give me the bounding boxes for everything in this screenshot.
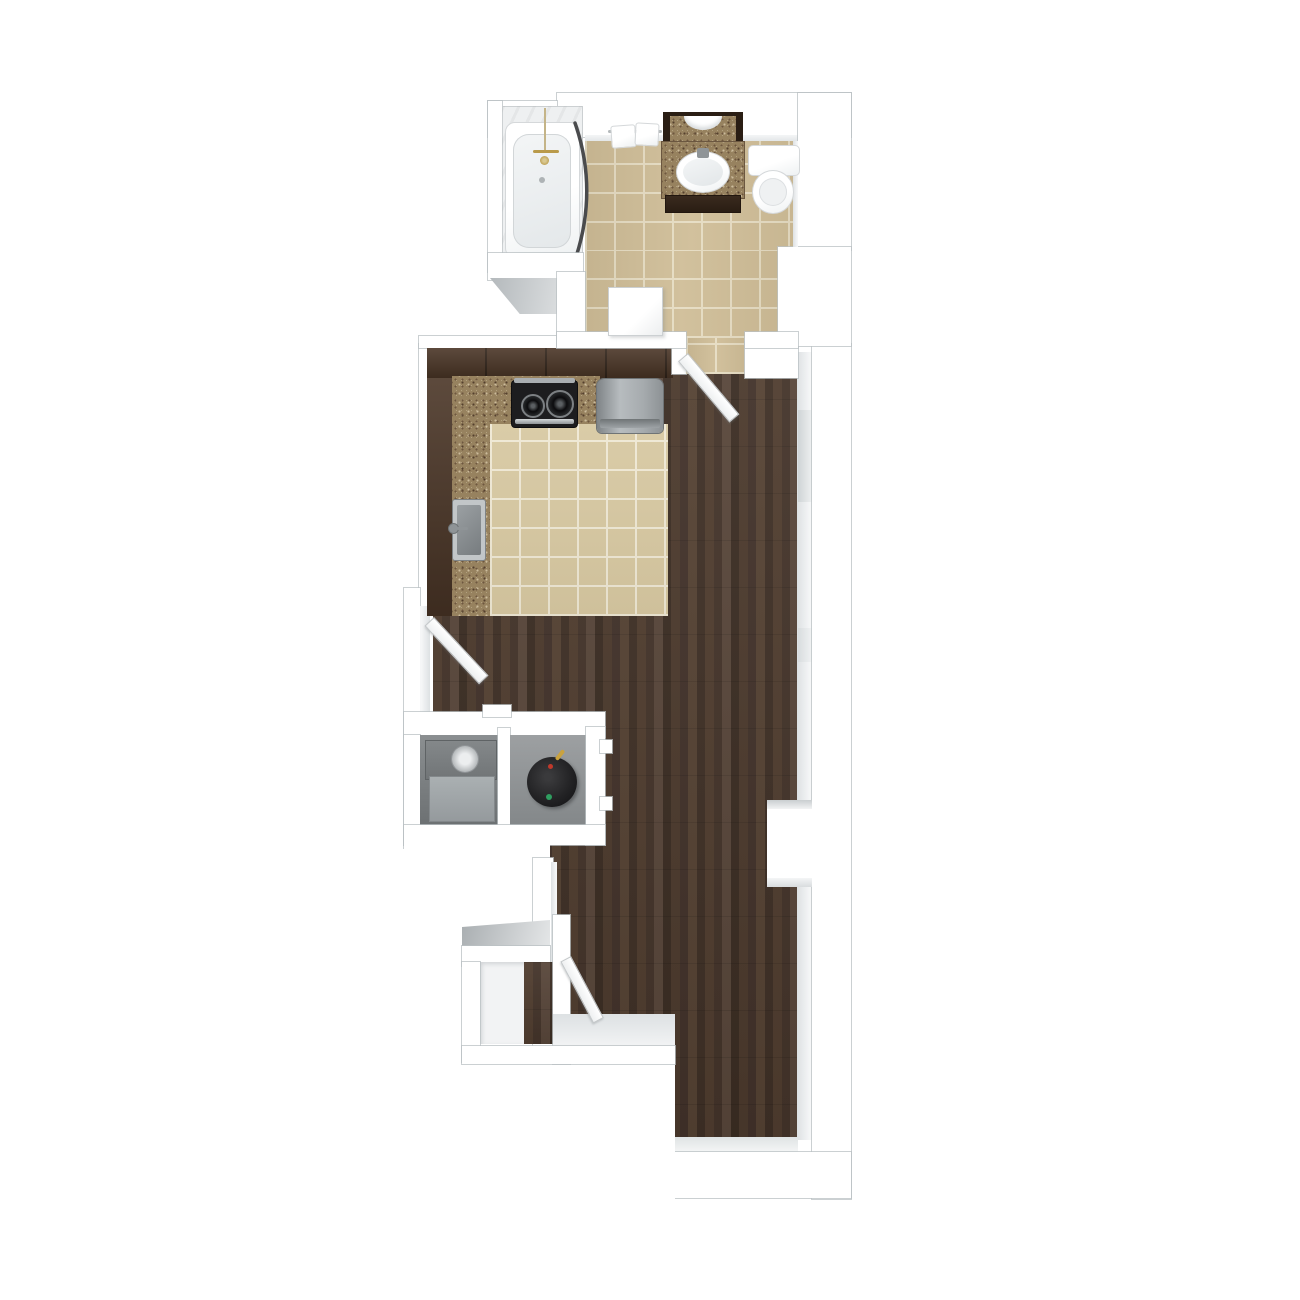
right-niche-bottom-edge [767,878,812,887]
right-niche-top-edge [767,800,812,809]
stove-back-trim [514,378,575,383]
refrigerator-door-band [600,419,660,428]
right-wall-niche-shadow-mid [798,628,812,662]
bathroom-left-wall [488,101,502,272]
vanity-mirror [663,112,743,146]
toilet-bowl [752,170,794,214]
bathtub-drain [539,177,545,183]
kitchen-tile-floor [490,424,668,616]
towel-right [634,122,659,146]
right-wall-niche-recess [767,800,812,887]
shower-fixture-bar [533,150,559,153]
stove-handle [515,419,574,424]
bottom-wall [659,1152,851,1198]
kitchen-upper-cabinets [427,348,673,378]
kitchen-faucet-spout [457,527,468,530]
kitchen-sink-basin [457,505,481,555]
stove-burner-right [546,390,574,418]
toilet-seat [759,178,787,206]
utility-closet-hinge-tab-1 [600,740,612,753]
shower-pipe [544,108,546,152]
vanity-sink [676,151,730,193]
hvac-unit-front [430,777,494,821]
towel-left [610,124,637,149]
kitchen-sink [453,500,485,560]
right-wall [812,344,851,1199]
kitchen-cabinet-left-run [427,378,452,616]
hvac-knob [452,746,478,772]
utility-closet-bottom-wall [404,825,605,845]
shower-knob [540,156,549,165]
vanity-faucet [697,148,709,158]
entry-bottom-wall-face [553,1014,675,1048]
water-heater-red-indicator [548,764,553,769]
right-wall-niche-shadow-upper [798,410,812,502]
bathroom-door-flat [608,287,663,336]
bathroom-bottom-wall-right [745,332,798,348]
utility-closet-hinge-tab-2 [600,797,612,810]
floor-plan-canvas [0,0,1300,1300]
exterior-bottom-left [404,1046,675,1300]
water-heater-green-indicator [546,794,552,800]
bathroom-right-wall-upper [798,93,851,250]
refrigerator [597,379,663,433]
entry-bottom-wall [462,1046,675,1064]
shower-curtain-rod [565,115,605,265]
range-stove [512,381,577,427]
utility-closet-top-tab [483,705,511,717]
entry-closet-floor-wood-part [524,962,553,1044]
vanity-sink-basin [683,158,723,186]
vanity-base-cabinet [666,196,740,212]
stove-burner-left [521,394,545,418]
